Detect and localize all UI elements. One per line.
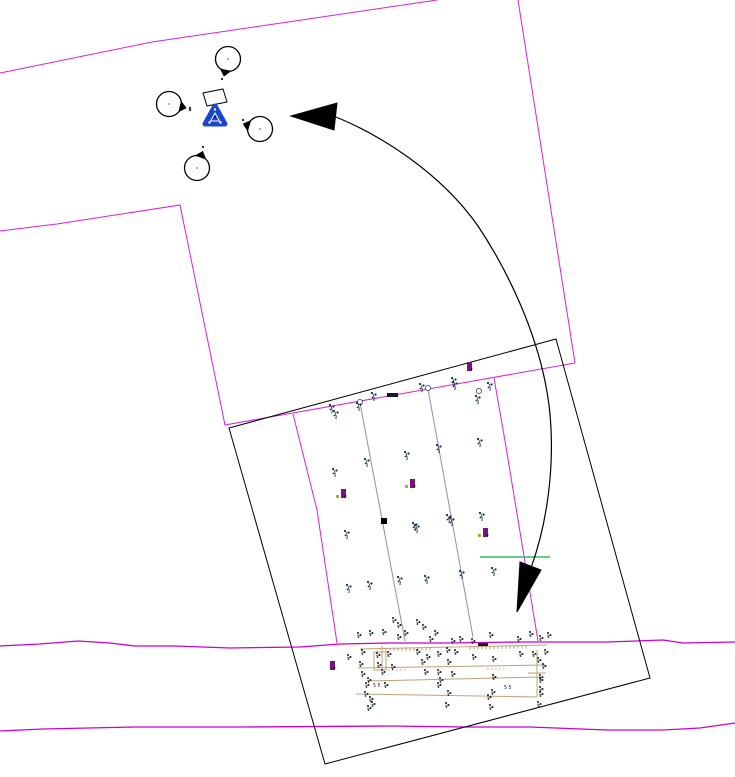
glyph-dot (471, 638, 473, 640)
glyph-dot (532, 651, 534, 653)
glyph-dot (376, 652, 378, 654)
glyph-dot (420, 388, 422, 390)
glyph-dot (490, 636, 492, 638)
symbol-white-dot (214, 108, 216, 110)
glyph-dot (460, 640, 462, 642)
elevation-label: 55 (504, 685, 513, 691)
strip-glyph (391, 664, 396, 670)
glyph-dot (361, 671, 363, 673)
glyph-dot (393, 621, 395, 623)
glyph-dot (451, 638, 453, 640)
purple-plant-marker (467, 362, 473, 371)
glyph-dot (360, 665, 362, 667)
plant-glyph (436, 444, 442, 453)
purple-plant-marker (405, 479, 416, 488)
strip-glyph (547, 632, 552, 638)
glyph-dot (392, 668, 394, 670)
glyph-dot (332, 468, 334, 470)
strip-glyph (459, 636, 464, 642)
glyph-dot (357, 632, 359, 634)
plant-glyph (491, 567, 497, 576)
glyph-dot (359, 661, 361, 663)
strip-glyph (437, 669, 442, 675)
strip-glyph (387, 651, 392, 657)
glyph-dot (547, 632, 549, 634)
glyph-dot (539, 686, 541, 688)
glyph-dot (378, 666, 380, 668)
glyph-dot (451, 524, 453, 526)
glyph-dot (426, 654, 428, 656)
row-end-marker (425, 385, 430, 390)
cad-viewport[interactable]: 5555 (0, 0, 735, 777)
survey-control-symbol (205, 106, 225, 124)
row-end-marker (476, 388, 481, 393)
strip-glyph (357, 632, 362, 638)
glyph-dot (387, 651, 389, 653)
glyph-stem (479, 440, 481, 445)
glyph-stem (489, 384, 491, 389)
glyph-dot (416, 619, 418, 621)
glyph-dot (439, 677, 441, 679)
glyph-dot (381, 669, 383, 671)
glyph-dot (361, 649, 363, 651)
glyph-dot (358, 409, 360, 411)
plant-glyph (333, 410, 339, 419)
glyph-stem (426, 577, 428, 582)
symbol-white-dot (219, 121, 221, 123)
glyph-dot (493, 678, 495, 680)
plant-glyph (424, 575, 430, 584)
boundary-lines (0, 0, 575, 643)
glyph-dot (422, 384, 424, 386)
glyph-dot (440, 681, 442, 683)
point-markers (381, 393, 488, 646)
cluster-dot (242, 119, 244, 121)
glyph-dot (539, 674, 541, 676)
glyph-dot (446, 514, 448, 516)
strip-glyph (537, 657, 542, 663)
glyph-dot (446, 647, 448, 649)
purple-markers (330, 362, 489, 670)
glyph-dot (448, 663, 450, 665)
glyph-dot (404, 451, 406, 453)
glyph-dot (493, 660, 495, 662)
glyph-dot (388, 655, 390, 657)
strip-glyph (392, 617, 397, 623)
glyph-dot (477, 402, 479, 404)
glyph-dot (451, 671, 453, 673)
strip-glyph (539, 674, 544, 680)
glyph-dot (540, 695, 542, 697)
glyph-dot (371, 392, 373, 394)
glyph-dot (481, 519, 483, 521)
strip-glyph (359, 661, 364, 667)
strip-glyph (371, 701, 376, 707)
strip-glyph (364, 691, 369, 697)
glyph-dot (377, 662, 379, 664)
plant-glyph (479, 512, 485, 521)
glyph-dot (488, 387, 490, 389)
glyph-dot (423, 628, 425, 630)
glyph-dot (397, 622, 399, 624)
glyph-dot (367, 677, 369, 679)
strip-glyph (424, 669, 429, 675)
glyph-dot (397, 634, 399, 636)
glyph-dot (364, 691, 366, 693)
strip-glyph (367, 705, 372, 711)
glyph-dot (373, 399, 375, 401)
strip-glyph (492, 656, 497, 662)
strip-glyph (446, 647, 451, 653)
olive-dot (405, 485, 408, 488)
glyph-dot (439, 445, 441, 447)
purple-dark-dot (345, 495, 347, 497)
strip-glyph (447, 690, 452, 696)
glyph-dot (345, 535, 347, 537)
strip-glyph (454, 649, 459, 655)
strip-glyph (429, 636, 434, 642)
strip-glyph (434, 630, 439, 636)
glyph-dot (475, 395, 477, 397)
glyph-dot (438, 655, 440, 657)
glyph-dot (537, 701, 539, 703)
plant-glyph (452, 381, 458, 390)
glyph-dot (422, 663, 424, 665)
glyph-dot (460, 575, 462, 577)
glyph-dot (417, 623, 419, 625)
strip-glyph (369, 696, 374, 702)
tree-center-dot (196, 167, 198, 169)
glyph-dot (449, 517, 451, 519)
glyph-dot (487, 382, 489, 384)
parcel-boundary (0, 0, 575, 425)
glyph-dot (405, 634, 407, 636)
glyph-dot (479, 512, 481, 514)
strip-glyph (369, 630, 374, 636)
black-square-marker (381, 518, 387, 524)
glyph-dot (455, 653, 457, 655)
glyph-dot (425, 580, 427, 582)
strip-glyph (539, 691, 544, 697)
glyph-stem (421, 385, 423, 390)
glyph-dot (459, 570, 461, 572)
glyph-dot (334, 475, 336, 477)
glyph-dot (414, 529, 416, 531)
glyph-dot (489, 632, 491, 634)
glyph-dot (407, 452, 409, 454)
glyph-dot (333, 410, 335, 412)
glyph-dot (479, 445, 481, 447)
glyph-dot (492, 693, 494, 695)
glyph-dot (538, 661, 540, 663)
glyph-dot (368, 586, 370, 588)
glyph-stem (346, 532, 348, 537)
glyph-dot (421, 659, 423, 661)
glyph-dot (335, 469, 337, 471)
glyph-dot (482, 513, 484, 515)
glyph-dot (445, 702, 447, 704)
glyph-dot (336, 411, 338, 413)
glyph-stem (477, 397, 479, 402)
strip-glyph (367, 677, 372, 683)
glyph-dot (518, 640, 520, 642)
glyph-dot (494, 568, 496, 570)
glyph-dot (436, 444, 438, 446)
glyph-dot (347, 589, 349, 591)
row-lines (357, 385, 481, 641)
glyph-stem (399, 578, 401, 583)
glyph-dot (517, 636, 519, 638)
glyph-dot (415, 523, 417, 525)
glyph-dot (364, 458, 366, 460)
glyph-dot (454, 378, 456, 380)
glyph-dot (391, 664, 393, 666)
glyph-dot (489, 389, 491, 391)
glyph-dot (424, 669, 426, 671)
glyph-dot (335, 417, 337, 419)
glyph-stem (348, 586, 350, 591)
strip-glyph (361, 671, 366, 677)
glyph-dot (446, 706, 448, 708)
glyph-dot (367, 705, 369, 707)
glyph-dot (539, 635, 541, 637)
strip-glyph (492, 674, 497, 680)
glyph-dot (334, 415, 336, 417)
cluster-dot (189, 107, 191, 109)
glyph-dot (404, 630, 406, 632)
glyph-dot (398, 626, 400, 628)
glyph-dot (447, 690, 449, 692)
plant-glyph (477, 438, 483, 447)
strip-glyph (361, 649, 366, 655)
glyph-dot (490, 383, 492, 385)
glyph-dot (437, 669, 439, 671)
strip-glyph (489, 632, 494, 638)
plant-glyph (367, 581, 373, 590)
glyph-dot (448, 694, 450, 696)
glyph-dot (548, 636, 550, 638)
plant-glyph (459, 570, 465, 579)
olive-dot (478, 534, 481, 537)
glyph-dot (346, 537, 348, 539)
glyph-dot (476, 400, 478, 402)
plant-glyph (364, 458, 370, 467)
glyph-dot (478, 443, 480, 445)
strip-glyph (422, 624, 427, 630)
strip-glyph (377, 662, 382, 668)
strip-glyph (376, 652, 381, 658)
plant-glyph (344, 530, 350, 539)
glyph-dot (348, 658, 350, 660)
strip-glyph (451, 671, 456, 677)
glyph-dot (487, 694, 489, 696)
glyph-stem (334, 470, 336, 475)
right-hang-boundary (494, 378, 538, 641)
glyph-dot (492, 656, 494, 658)
glyph-dot (405, 456, 407, 458)
site-plan-drawing: 5555 (0, 0, 735, 777)
glyph-dot (358, 636, 360, 638)
strip-glyph (542, 663, 547, 669)
glyph-dot (461, 577, 463, 579)
glyph-dot (399, 583, 401, 585)
glyph-dot (430, 640, 432, 642)
glyph-stem (416, 526, 418, 531)
glyph-dot (447, 519, 449, 521)
glyph-dot (477, 438, 479, 440)
glyph-dot (529, 631, 531, 633)
glyph-dot (455, 382, 457, 384)
tree-symbol (157, 92, 187, 117)
glyph-dot (543, 667, 545, 669)
glyph-dot (346, 584, 348, 586)
purple-plant-marker (330, 661, 336, 670)
glyph-dot (359, 403, 361, 405)
glyph-dot (356, 402, 358, 404)
glyph-dot (540, 681, 542, 683)
strip-glyph (439, 677, 444, 683)
glyph-dot (365, 682, 367, 684)
glyph-dot (438, 686, 440, 688)
glyph-dot (369, 696, 371, 698)
glyph-dot (492, 572, 494, 574)
glyph-dot (437, 682, 439, 684)
glyph-dot (400, 577, 402, 579)
glyph-dot (478, 396, 480, 398)
glyph-dot (454, 388, 456, 390)
strip-glyph (487, 694, 492, 700)
glyph-dot (542, 663, 544, 665)
strip-glyph (437, 651, 442, 657)
glyph-dot (362, 653, 364, 655)
dark-bar-marker (387, 393, 398, 397)
upper-road-line (0, 640, 735, 648)
elevation-label: 55 (373, 683, 382, 689)
strip-glyph (537, 701, 542, 707)
lower-road-line (0, 723, 735, 731)
glyph-stem (493, 569, 495, 574)
left-hang-boundary (293, 414, 337, 643)
glyph-dot (392, 617, 394, 619)
glyph-dot (348, 591, 350, 593)
glyph-stem (481, 514, 483, 519)
glyph-dot (331, 411, 333, 413)
tree-center-dot (227, 58, 229, 60)
strip-glyph (517, 636, 522, 642)
glyph-dot (537, 657, 539, 659)
glyph-dot (453, 386, 455, 388)
strip-glyph (365, 682, 370, 688)
glyph-dot (540, 639, 542, 641)
glyph-dot (472, 654, 474, 656)
purple-dark-dot (414, 485, 416, 487)
tree-center-dot (259, 128, 261, 130)
glyph-dot (459, 636, 461, 638)
glyph-dot (438, 673, 440, 675)
glyph-dot (452, 381, 454, 383)
symbol-white-dot (208, 121, 210, 123)
glyph-dot (519, 651, 521, 653)
strip-glyph (539, 635, 544, 641)
plant-glyph (397, 576, 403, 585)
glyph-stem (406, 453, 408, 458)
glyph-dot (473, 658, 475, 660)
glyph-dot (480, 517, 482, 519)
glyph-dot (362, 675, 364, 677)
glyph-dot (434, 630, 436, 632)
glyph-dot (450, 522, 452, 524)
glyph-dot (366, 686, 368, 688)
glyph-dot (490, 708, 492, 710)
glyph-dot (385, 686, 387, 688)
glyph-dot (425, 673, 427, 675)
glyph-dot (539, 677, 541, 679)
cluster-dot (221, 78, 223, 80)
glyph-stem (335, 412, 337, 417)
glyph-dot (452, 518, 454, 520)
rotated-white-rect (203, 89, 227, 106)
glyph-dot (538, 705, 540, 707)
glyph-dot (417, 525, 419, 527)
glyph-dot (533, 655, 535, 657)
strip-glyph (382, 629, 387, 635)
purple-dark-dot (471, 368, 473, 370)
glyph-dot (422, 624, 424, 626)
purple-plant-marker (478, 528, 489, 537)
glyph-dot (372, 397, 374, 399)
glyph-dot (492, 674, 494, 676)
glyph-dot (437, 449, 439, 451)
glyph-dot (347, 531, 349, 533)
glyph-dot (406, 458, 408, 460)
glyph-dot (369, 588, 371, 590)
strip-glyph (544, 649, 549, 655)
glyph-dot (451, 377, 453, 379)
purple-plant-marker (336, 489, 347, 498)
glyph-dot (369, 630, 371, 632)
terrace-lines (356, 645, 547, 697)
glyph-dot (367, 459, 369, 461)
strip-glyph (426, 654, 431, 660)
plant-glyph (487, 382, 493, 391)
glyph-dot (544, 649, 546, 651)
strip-glyph (472, 654, 477, 660)
strip-glyph (384, 682, 389, 688)
glyph-dot (344, 530, 346, 532)
strip-glyph (416, 619, 421, 625)
glyph-dot (382, 673, 384, 675)
symbol-center-dot (214, 116, 216, 118)
strip-glyph (397, 634, 402, 640)
tree-symbol (243, 117, 273, 142)
row-line (428, 389, 473, 637)
rotation-arrow (291, 103, 551, 612)
glyph-dot (413, 527, 415, 529)
tree-symbol (185, 151, 210, 181)
tree-center-dot (168, 103, 170, 105)
strip-glyph (437, 682, 442, 688)
strip-glyph (489, 704, 494, 710)
glyph-dot (462, 571, 464, 573)
glyph-dot (397, 576, 399, 578)
glyph-dot (330, 409, 332, 411)
glyph-dot (367, 581, 369, 583)
glyph-dot (427, 658, 429, 660)
glyph-dot (365, 463, 367, 465)
tree-symbol (216, 47, 241, 77)
glyph-dot (472, 642, 474, 644)
glyph-dot (488, 698, 490, 700)
